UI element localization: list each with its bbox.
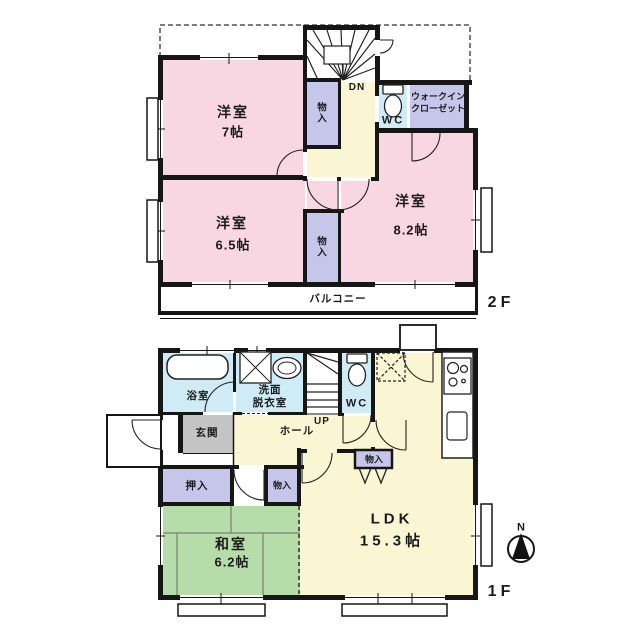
label-stairs-dn: DN [349,83,365,93]
kitchen-sink-icon [447,412,467,440]
compass-icon [508,533,534,562]
label-bath: 浴室 [187,391,210,402]
floor1-plan [107,325,492,616]
label-room82-name: 洋室 [395,194,427,208]
floor-plan: 洋室 7帖 物入 DN WC ウォークイン クローゼット 洋室 6.5帖 物入 … [0,0,640,640]
label-washroom-line2: 脱衣室 [253,398,288,409]
label-entrance: 玄関 [196,428,219,439]
entry-porch [107,415,161,467]
bathtub-icon [167,355,228,379]
label-closet-ldk: 物入 [365,456,383,465]
label-balcony: バルコニー [309,294,366,305]
label-stairs-up: UP [314,417,330,427]
toilet-icon-1f [347,354,367,386]
label-hall: ホール [280,426,315,437]
label-closet-hall: 物入 [273,482,291,491]
floor2-plan [147,25,492,319]
label-room7-name: 洋室 [217,105,249,119]
stove-icon [444,358,471,394]
label-ldk-name: LDK [371,512,414,527]
stairs1f-area [307,353,338,413]
label-closet-lower-2f: 物入 [316,237,328,260]
label-wic-line2: クローゼット [411,105,465,114]
label-washroom-line1: 洗面 [259,385,282,396]
label-wic-line1: ウォークイン [411,93,465,102]
label-washitsu-name: 和室 [215,537,247,551]
label-floor1: 1F [488,584,515,600]
toilet-icon-2f [383,85,403,117]
label-oshiire: 押入 [186,481,209,492]
sink-icon [273,358,301,379]
label-north: N [517,523,525,534]
back-porch [400,325,436,350]
floor-plan-drawing [0,0,640,640]
label-room65-size: 6.5帖 [215,239,250,252]
label-room82-size: 8.2帖 [393,224,428,237]
label-ldk-size: 15.3帖 [360,534,424,549]
kitchen-counter [442,352,473,458]
label-wc-1f: WC [346,399,368,410]
label-floor2: 2F [488,295,515,311]
label-wc-2f: WC [382,116,404,127]
hall-area [233,415,373,465]
label-closet-upper-2f: 物入 [316,103,328,126]
room-65-area [160,180,305,282]
label-room7-size: 7帖 [222,126,244,139]
washing-machine-icon [240,352,271,383]
label-room65-name: 洋室 [216,216,248,230]
label-washitsu-size: 6.2帖 [214,556,249,569]
